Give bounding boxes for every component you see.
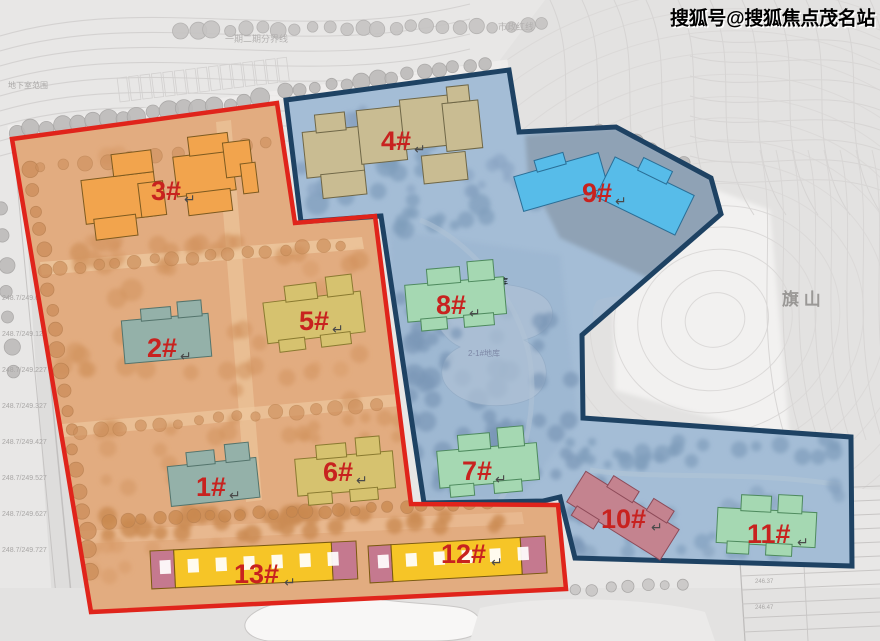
svg-text:248.7/249.527: 248.7/249.527 [2,475,47,482]
svg-text:↵: ↵ [491,554,503,570]
svg-text:↵: ↵ [180,348,192,364]
svg-text:6#: 6# [323,457,353,487]
svg-text:↵: ↵ [332,321,344,337]
svg-text:↵: ↵ [356,472,368,488]
svg-text:↵: ↵ [414,141,426,157]
svg-text:↵: ↵ [797,534,809,550]
svg-text:12#: 12# [441,539,486,569]
svg-text:11#: 11# [747,519,791,549]
svg-text:↵: ↵ [284,574,296,590]
svg-text:市政红线: 市政红线 [498,21,534,32]
svg-text:5#: 5# [299,306,329,336]
svg-text:10#: 10# [601,504,646,534]
svg-text:248.7/249.727: 248.7/249.727 [2,547,47,554]
svg-text:8#: 8# [436,290,466,320]
svg-text:4#: 4# [381,126,411,156]
svg-text:↵: ↵ [615,193,627,209]
svg-text:↵: ↵ [651,519,663,535]
svg-text:248.7/249.427: 248.7/249.427 [2,439,47,446]
svg-text:↵: ↵ [229,487,241,503]
svg-text:248.7/249.327: 248.7/249.327 [2,403,47,410]
svg-text:246.37: 246.37 [755,579,774,585]
svg-text:↵: ↵ [495,471,507,487]
svg-text:2#: 2# [147,333,177,363]
svg-text:13#: 13# [234,559,279,589]
svg-text:248.7/249.127: 248.7/249.127 [2,331,47,338]
svg-text:地下室范围: 地下室范围 [8,80,48,90]
svg-text:↵: ↵ [469,305,481,321]
svg-text:248.7/249.627: 248.7/249.627 [2,511,47,518]
svg-text:246.47: 246.47 [755,605,774,611]
svg-text:3#: 3# [151,176,181,206]
svg-text:2-1#地库: 2-1#地库 [468,348,500,358]
svg-text:搜狐号@搜狐焦点茂名站: 搜狐号@搜狐焦点茂名站 [670,7,876,30]
svg-text:9#: 9# [582,178,612,208]
svg-text:7#: 7# [462,456,492,486]
svg-text:旗 山: 旗 山 [782,289,821,309]
svg-text:248.7/249.227: 248.7/249.227 [2,367,47,374]
svg-text:一期二期分界线: 一期二期分界线 [225,33,288,44]
svg-text:↵: ↵ [184,191,196,207]
svg-text:1#: 1# [196,472,226,502]
